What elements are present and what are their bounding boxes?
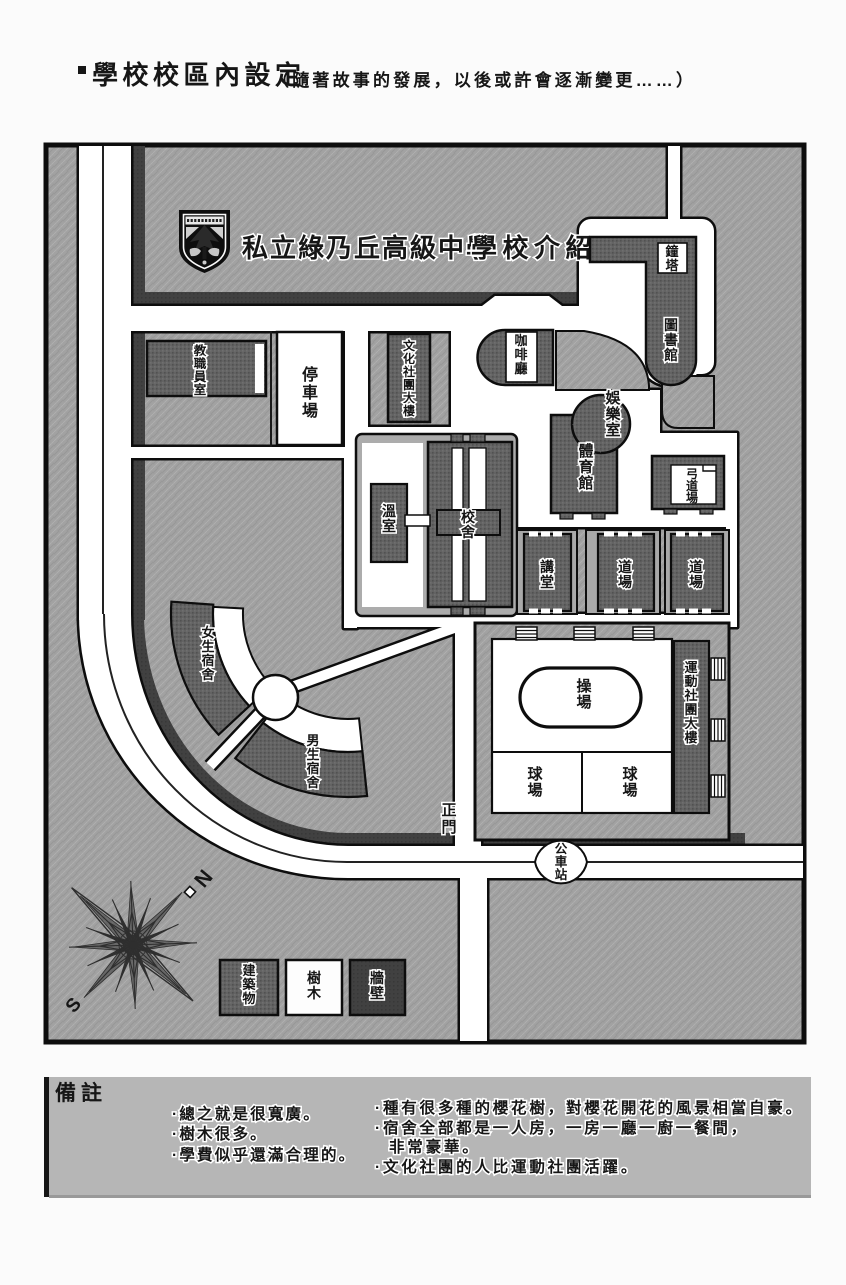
svg-text:文: 文: [403, 338, 416, 353]
svg-text:溫: 溫: [382, 503, 396, 519]
svg-text:運: 運: [684, 660, 697, 675]
svg-text:·學費似乎還滿合理的。: ·學費似乎還滿合理的。: [172, 1145, 356, 1164]
svg-text:室: 室: [194, 382, 207, 397]
svg-text:·文化社團的人比運動社團活躍。: ·文化社團的人比運動社團活躍。: [375, 1157, 639, 1176]
svg-text:咖: 咖: [514, 333, 527, 348]
svg-text:體: 體: [578, 442, 593, 460]
svg-text:團: 團: [684, 702, 697, 717]
svg-text:社: 社: [683, 688, 697, 703]
svg-text:場: 場: [618, 574, 632, 590]
svg-text:學校介紹: 學校介紹: [471, 233, 597, 263]
svg-text:公: 公: [555, 842, 568, 856]
svg-text:·總之就是很寬廣。: ·總之就是很寬廣。: [172, 1104, 321, 1123]
svg-text:站: 站: [555, 867, 568, 882]
svg-text:備註: 備註: [55, 1081, 107, 1105]
svg-text:團: 團: [403, 378, 415, 392]
svg-text:動: 動: [684, 674, 697, 689]
svg-text:講: 講: [540, 559, 554, 575]
svg-text:室: 室: [605, 421, 620, 439]
svg-text:舍: 舍: [306, 775, 320, 790]
svg-text:舍: 舍: [201, 667, 215, 682]
svg-text:牆: 牆: [370, 970, 384, 986]
svg-text:·宿舍全部都是一人房，一房一廳一廚一餐間，: ·宿舍全部都是一人房，一房一廳一廚一餐間，: [375, 1118, 749, 1137]
svg-text:場: 場: [622, 782, 637, 799]
svg-text:非常豪華。: 非常豪華。: [389, 1137, 481, 1156]
svg-text:女: 女: [201, 625, 214, 640]
svg-text:壁: 壁: [370, 985, 384, 1001]
svg-text:道: 道: [618, 559, 632, 575]
svg-text:·種有很多種的櫻花樹，對櫻花開花的風景相當自豪。: ·種有很多種的櫻花樹，對櫻花開花的風景相當自豪。: [375, 1098, 804, 1117]
svg-text:樓: 樓: [684, 730, 697, 745]
svg-text:職: 職: [194, 356, 207, 371]
svg-text:校: 校: [461, 509, 476, 525]
svg-text:男: 男: [306, 733, 319, 748]
svg-text:操: 操: [576, 677, 592, 695]
svg-text:圖: 圖: [664, 317, 678, 333]
svg-text:車: 車: [302, 383, 318, 402]
svg-text:正: 正: [441, 802, 456, 819]
svg-text:館: 館: [577, 474, 593, 492]
svg-text:球: 球: [527, 765, 543, 783]
svg-text:宿: 宿: [201, 653, 214, 668]
svg-text:樓: 樓: [403, 403, 415, 418]
svg-text:物: 物: [242, 991, 255, 1006]
svg-text:場: 場: [576, 694, 591, 711]
svg-text:（隨著故事的發展，以後或許會逐漸變更……）: （隨著故事的發展，以後或許會逐漸變更……）: [272, 70, 696, 90]
svg-text:場: 場: [302, 402, 318, 420]
svg-text:娛: 娛: [604, 389, 620, 407]
svg-text:場: 場: [689, 574, 703, 590]
svg-text:鐘: 鐘: [665, 244, 678, 259]
svg-text:樂: 樂: [605, 405, 621, 423]
svg-text:化: 化: [403, 351, 415, 366]
svg-text:生: 生: [306, 747, 319, 762]
svg-text:啡: 啡: [514, 347, 527, 362]
svg-text:廳: 廳: [514, 361, 527, 376]
svg-text:場: 場: [527, 782, 542, 799]
svg-text:塔: 塔: [665, 258, 679, 273]
svg-text:員: 員: [193, 369, 207, 384]
svg-text:樹: 樹: [307, 970, 321, 986]
svg-text:私立綠乃丘高級中學: 私立綠乃丘高級中學: [242, 233, 494, 263]
svg-text:育: 育: [578, 458, 593, 476]
svg-text:大: 大: [684, 716, 697, 731]
svg-text:車: 車: [555, 854, 568, 869]
svg-text:門: 門: [441, 819, 456, 836]
svg-text:·樹木很多。: ·樹木很多。: [172, 1124, 268, 1143]
svg-text:舍: 舍: [460, 524, 476, 540]
svg-text:書: 書: [664, 332, 678, 348]
svg-text:教: 教: [193, 343, 207, 358]
svg-text:場: 場: [686, 490, 698, 505]
svg-text:停: 停: [302, 365, 318, 384]
svg-text:室: 室: [382, 518, 396, 534]
svg-text:社: 社: [402, 364, 415, 379]
svg-text:大: 大: [403, 390, 415, 405]
svg-text:建: 建: [242, 963, 255, 978]
svg-text:道: 道: [689, 559, 703, 575]
svg-text:宿: 宿: [306, 761, 319, 776]
svg-text:築: 築: [241, 977, 256, 992]
svg-text:館: 館: [663, 347, 678, 363]
svg-text:木: 木: [306, 985, 322, 1001]
svg-text:生: 生: [201, 639, 214, 654]
svg-text:球: 球: [622, 765, 638, 783]
svg-text:堂: 堂: [540, 574, 554, 590]
